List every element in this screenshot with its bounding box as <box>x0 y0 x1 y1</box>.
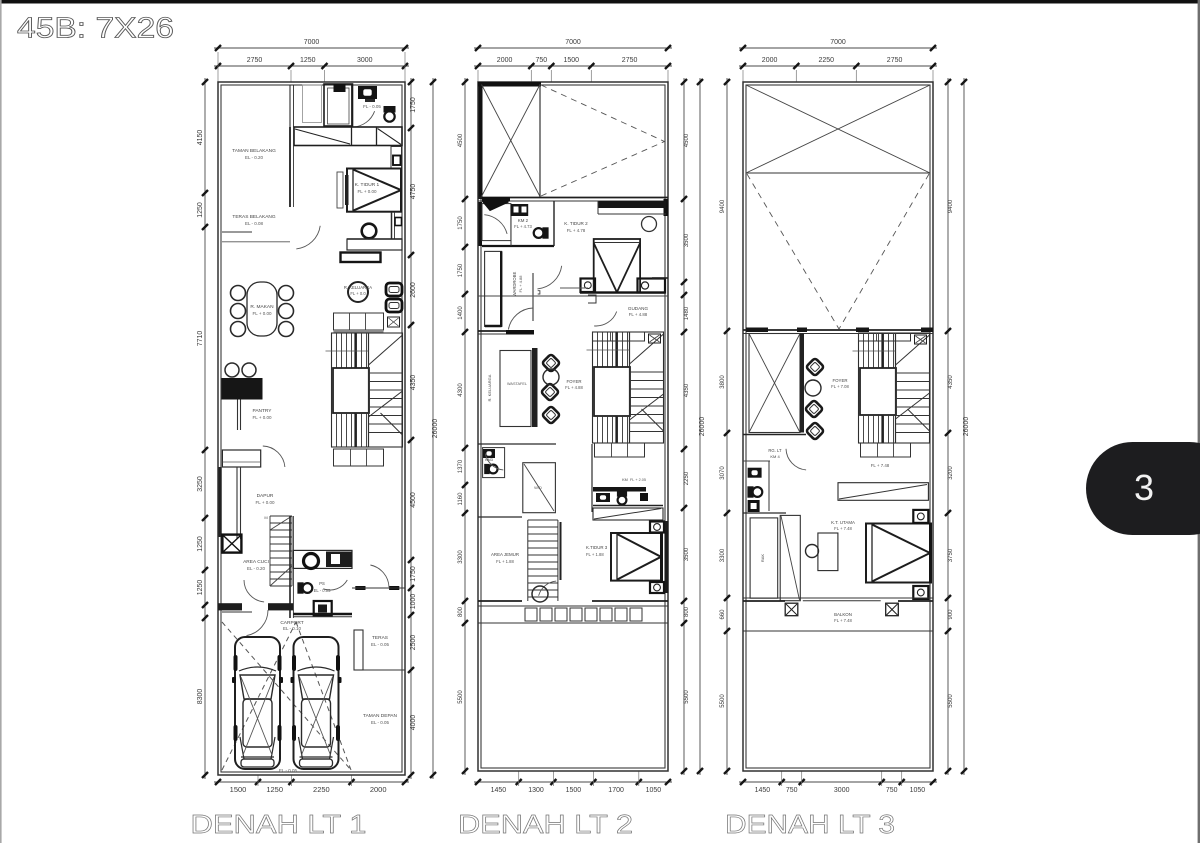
svg-text:1300: 1300 <box>528 787 544 794</box>
svg-text:800: 800 <box>684 606 690 617</box>
svg-text:2250: 2250 <box>313 785 330 794</box>
svg-text:1500: 1500 <box>230 785 247 794</box>
svg-text:M: M <box>264 515 267 520</box>
svg-text:2750: 2750 <box>887 57 903 64</box>
svg-text:FL + 2.05: FL + 2.05 <box>630 478 646 482</box>
svg-text:2750: 2750 <box>622 57 638 64</box>
svg-text:4000: 4000 <box>410 715 417 731</box>
svg-text:FOYER: FOYER <box>566 379 581 384</box>
svg-text:9400: 9400 <box>720 199 726 213</box>
svg-text:K.TIDUR 3: K.TIDUR 3 <box>586 545 608 550</box>
svg-text:GUDANG: GUDANG <box>628 306 649 311</box>
svg-text:3000: 3000 <box>357 57 373 64</box>
svg-text:7000: 7000 <box>304 39 320 46</box>
svg-text:TAMAN BELAKANG: TAMAN BELAKANG <box>232 148 276 154</box>
svg-text:1250: 1250 <box>266 785 283 794</box>
svg-text:FL + 4.88: FL + 4.88 <box>518 275 523 293</box>
svg-text:FL - 0.05: FL - 0.05 <box>363 104 381 109</box>
svg-text:FL + 1.88: FL + 1.88 <box>586 552 604 557</box>
svg-text:WASTAFEL: WASTAFEL <box>507 382 527 386</box>
svg-text:2500: 2500 <box>410 635 417 651</box>
svg-text:2750: 2750 <box>247 57 263 64</box>
svg-text:RAK: RAK <box>760 554 765 563</box>
svg-text:2600: 2600 <box>410 282 417 298</box>
svg-text:3300: 3300 <box>720 548 726 562</box>
svg-text:KM 4: KM 4 <box>770 454 780 459</box>
svg-text:1750: 1750 <box>458 263 464 277</box>
svg-text:R. KELUARGA: R. KELUARGA <box>487 374 492 401</box>
svg-text:FL + 0.00: FL + 0.00 <box>253 415 272 420</box>
svg-text:1250: 1250 <box>300 57 316 64</box>
svg-text:26000: 26000 <box>963 417 970 437</box>
svg-text:5500: 5500 <box>720 694 726 708</box>
svg-text:3250: 3250 <box>197 476 204 492</box>
svg-text:PANTRY: PANTRY <box>252 408 272 414</box>
svg-text:8300: 8300 <box>197 689 204 705</box>
svg-text:3: 3 <box>1134 467 1154 508</box>
svg-text:660: 660 <box>720 609 726 620</box>
svg-text:750: 750 <box>535 57 547 64</box>
svg-text:FL + 0.0: FL + 0.0 <box>350 291 366 296</box>
svg-text:3750: 3750 <box>948 548 954 562</box>
svg-text:1750: 1750 <box>410 566 417 582</box>
svg-text:FL + 0.00: FL + 0.00 <box>358 189 377 194</box>
svg-text:5500: 5500 <box>948 694 954 708</box>
svg-text:RG. LT: RG. LT <box>768 448 782 453</box>
svg-text:1160: 1160 <box>458 492 464 506</box>
svg-text:DENAH LT 1: DENAH LT 1 <box>191 809 367 839</box>
svg-text:K.T. UTAMA: K.T. UTAMA <box>831 520 855 525</box>
svg-text:4500: 4500 <box>410 492 417 508</box>
svg-text:5500: 5500 <box>684 690 690 704</box>
svg-text:TERAS: TERAS <box>372 635 388 641</box>
svg-text:7710: 7710 <box>197 331 204 347</box>
svg-text:1000: 1000 <box>410 594 417 610</box>
svg-text:DENAH LT 3: DENAH LT 3 <box>725 809 895 839</box>
svg-text:3800: 3800 <box>720 375 726 389</box>
svg-text:AREA JEMUR: AREA JEMUR <box>491 552 519 557</box>
svg-text:1450: 1450 <box>755 787 771 794</box>
svg-text:FOYER: FOYER <box>832 378 847 383</box>
svg-text:FL + 4.73: FL + 4.73 <box>514 224 532 229</box>
svg-text:R. KELUARGA: R. KELUARGA <box>344 285 372 290</box>
svg-text:1400: 1400 <box>458 306 464 320</box>
svg-text:2250: 2250 <box>819 57 835 64</box>
svg-text:3200: 3200 <box>948 466 954 480</box>
svg-text:4500: 4500 <box>684 133 690 147</box>
svg-text:1500: 1500 <box>566 787 582 794</box>
svg-text:K. TIDUR 2: K. TIDUR 2 <box>564 221 588 226</box>
svg-text:1750: 1750 <box>410 97 417 113</box>
svg-text:1750: 1750 <box>458 216 464 230</box>
svg-text:800: 800 <box>458 606 464 617</box>
svg-text:1450: 1450 <box>491 787 507 794</box>
svg-text:1050: 1050 <box>910 787 926 794</box>
svg-text:3300: 3300 <box>458 550 464 564</box>
svg-text:WARDROBE: WARDROBE <box>512 272 517 297</box>
svg-text:1500: 1500 <box>564 57 580 64</box>
svg-text:2250: 2250 <box>684 471 690 485</box>
svg-text:FL + 0.00: FL + 0.00 <box>256 500 275 505</box>
svg-text:EL - 0.05: EL - 0.05 <box>314 588 332 593</box>
svg-text:1370: 1370 <box>458 459 464 473</box>
svg-text:EL - 0.05: EL - 0.05 <box>279 768 298 773</box>
svg-text:900: 900 <box>948 609 954 620</box>
svg-text:7000: 7000 <box>830 39 846 46</box>
svg-text:FL + 0.00: FL + 0.00 <box>253 311 272 316</box>
svg-text:4350: 4350 <box>948 375 954 389</box>
svg-text:DAPUR: DAPUR <box>257 493 274 499</box>
svg-text:4350: 4350 <box>410 375 417 391</box>
svg-text:3070: 3070 <box>720 466 726 480</box>
svg-text:3500: 3500 <box>684 547 690 561</box>
svg-text:FL + 7.48: FL + 7.48 <box>834 526 852 531</box>
svg-text:2000: 2000 <box>497 57 513 64</box>
svg-text:1250: 1250 <box>197 580 204 596</box>
svg-text:750: 750 <box>886 787 898 794</box>
svg-text:K. TIDUR 1: K. TIDUR 1 <box>355 182 380 188</box>
svg-text:26000: 26000 <box>432 419 439 439</box>
svg-text:EL - 0.20: EL - 0.20 <box>245 155 264 160</box>
svg-text:3000: 3000 <box>834 787 850 794</box>
svg-text:FL + 7.48: FL + 7.48 <box>834 618 852 623</box>
svg-text:TERAS BELAKANG: TERAS BELAKANG <box>232 214 275 220</box>
svg-text:1700: 1700 <box>608 787 624 794</box>
svg-text:4150: 4150 <box>197 130 204 146</box>
svg-text:EL - 0.05: EL - 0.05 <box>371 642 390 647</box>
svg-text:FL + 4.88: FL + 4.88 <box>565 385 583 390</box>
svg-text:3500: 3500 <box>684 233 690 247</box>
svg-text:1050: 1050 <box>646 787 662 794</box>
svg-text:45B: 7X26: 45B: 7X26 <box>17 13 174 45</box>
svg-text:7000: 7000 <box>565 39 581 46</box>
svg-text:750: 750 <box>786 787 798 794</box>
svg-text:9400: 9400 <box>948 199 954 213</box>
svg-text:KM 2: KM 2 <box>518 218 529 223</box>
svg-text:4750: 4750 <box>410 184 417 200</box>
svg-text:KM: KM <box>622 478 628 482</box>
svg-text:FL + 7.48: FL + 7.48 <box>871 463 890 468</box>
svg-text:5500: 5500 <box>458 690 464 704</box>
svg-text:26000: 26000 <box>699 417 706 437</box>
svg-text:2000: 2000 <box>762 57 778 64</box>
svg-text:W/D: W/D <box>534 485 542 490</box>
svg-text:4500: 4500 <box>458 133 464 147</box>
svg-text:DENAH LT 2: DENAH LT 2 <box>458 809 633 839</box>
svg-text:1250: 1250 <box>197 536 204 552</box>
svg-text:FL + 7.08: FL + 7.08 <box>831 384 849 389</box>
svg-text:1250: 1250 <box>197 202 204 218</box>
svg-text:4350: 4350 <box>684 383 690 397</box>
svg-text:PS: PS <box>319 581 325 586</box>
svg-text:FL + 4.88: FL + 4.88 <box>629 312 648 317</box>
svg-text:BALKON: BALKON <box>834 612 852 617</box>
svg-text:FL + 1.88: FL + 1.88 <box>496 559 514 564</box>
svg-text:EL - 0.20: EL - 0.20 <box>247 566 266 571</box>
svg-text:AREA CUCI: AREA CUCI <box>243 559 269 565</box>
svg-text:1480: 1480 <box>684 306 690 320</box>
svg-text:R. MAKAN: R. MAKAN <box>250 304 274 310</box>
svg-text:TAMAN DEPAN: TAMAN DEPAN <box>363 713 397 719</box>
svg-text:4300: 4300 <box>458 383 464 397</box>
svg-text:FL + 4.78: FL + 4.78 <box>567 228 586 233</box>
svg-text:2000: 2000 <box>370 785 387 794</box>
svg-text:EL - 0.08: EL - 0.08 <box>245 221 264 226</box>
svg-text:EL - 0.05: EL - 0.05 <box>371 720 390 725</box>
